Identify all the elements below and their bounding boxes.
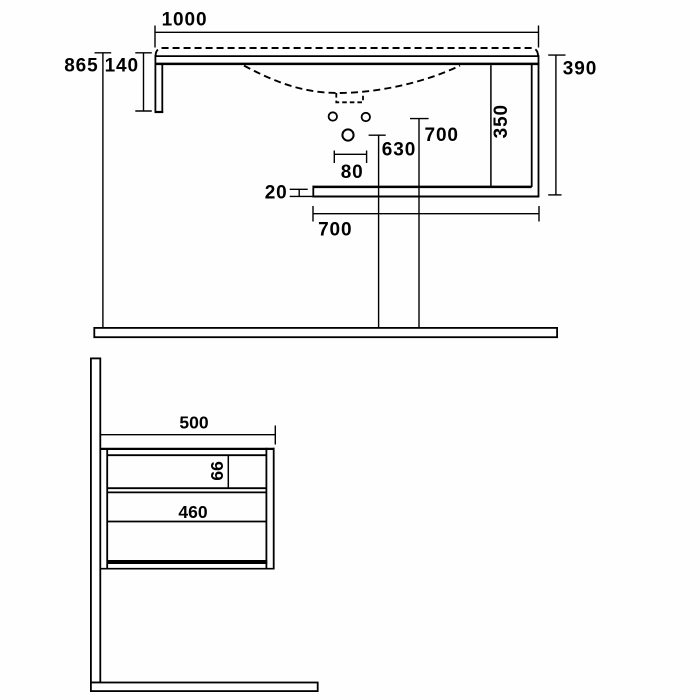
svg-text:500: 500 xyxy=(179,412,208,432)
svg-text:700: 700 xyxy=(318,219,352,240)
svg-text:390: 390 xyxy=(563,59,597,80)
svg-text:460: 460 xyxy=(178,502,207,522)
svg-text:20: 20 xyxy=(265,182,288,203)
svg-text:700: 700 xyxy=(425,125,459,146)
svg-text:80: 80 xyxy=(341,162,364,183)
svg-text:865: 865 xyxy=(64,56,98,77)
svg-text:630: 630 xyxy=(382,139,416,160)
svg-text:140: 140 xyxy=(105,56,139,77)
svg-text:350: 350 xyxy=(491,104,512,138)
svg-text:1000: 1000 xyxy=(162,10,208,31)
svg-text:66: 66 xyxy=(207,461,227,481)
